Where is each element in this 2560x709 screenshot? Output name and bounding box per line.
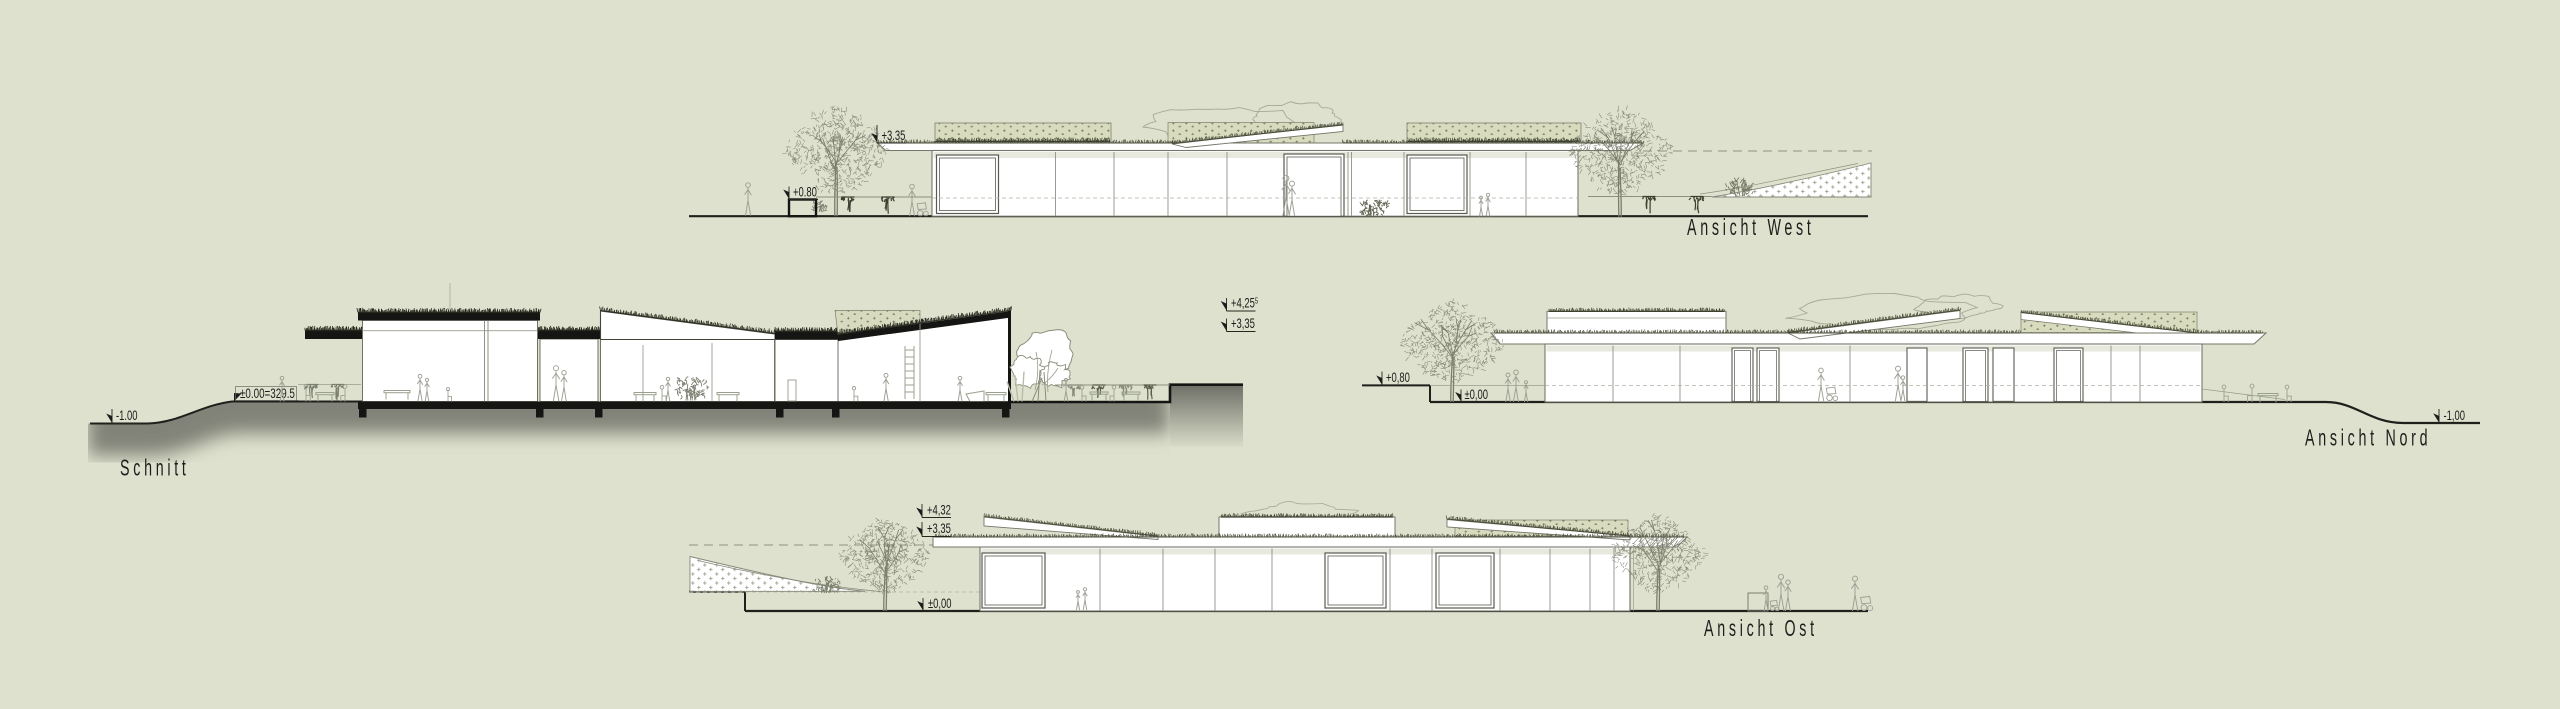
svg-text:Ansicht Nord: Ansicht Nord xyxy=(2305,426,2431,451)
svg-text:-1,00: -1,00 xyxy=(2444,408,2466,423)
svg-text:+3,35: +3,35 xyxy=(927,521,951,536)
svg-text:±0,00: ±0,00 xyxy=(1465,387,1489,402)
svg-text:±0,00: ±0,00 xyxy=(928,596,952,611)
svg-text:+4,255: +4,255 xyxy=(1231,295,1258,311)
svg-text:+3.35: +3.35 xyxy=(882,128,906,143)
svg-text:+3,35: +3,35 xyxy=(1231,316,1255,331)
svg-text:+0,80: +0,80 xyxy=(1386,370,1410,385)
svg-text:Ansicht Ost: Ansicht Ost xyxy=(1704,617,1818,642)
svg-text:+0.80: +0.80 xyxy=(793,185,817,200)
svg-text:Ansicht West: Ansicht West xyxy=(1687,216,1815,241)
svg-text:Schnitt: Schnitt xyxy=(120,456,190,481)
svg-text:-1.00: -1.00 xyxy=(116,408,138,423)
svg-text:+4,32: +4,32 xyxy=(927,503,951,518)
svg-text:±0.00=329.5: ±0.00=329.5 xyxy=(240,385,295,401)
